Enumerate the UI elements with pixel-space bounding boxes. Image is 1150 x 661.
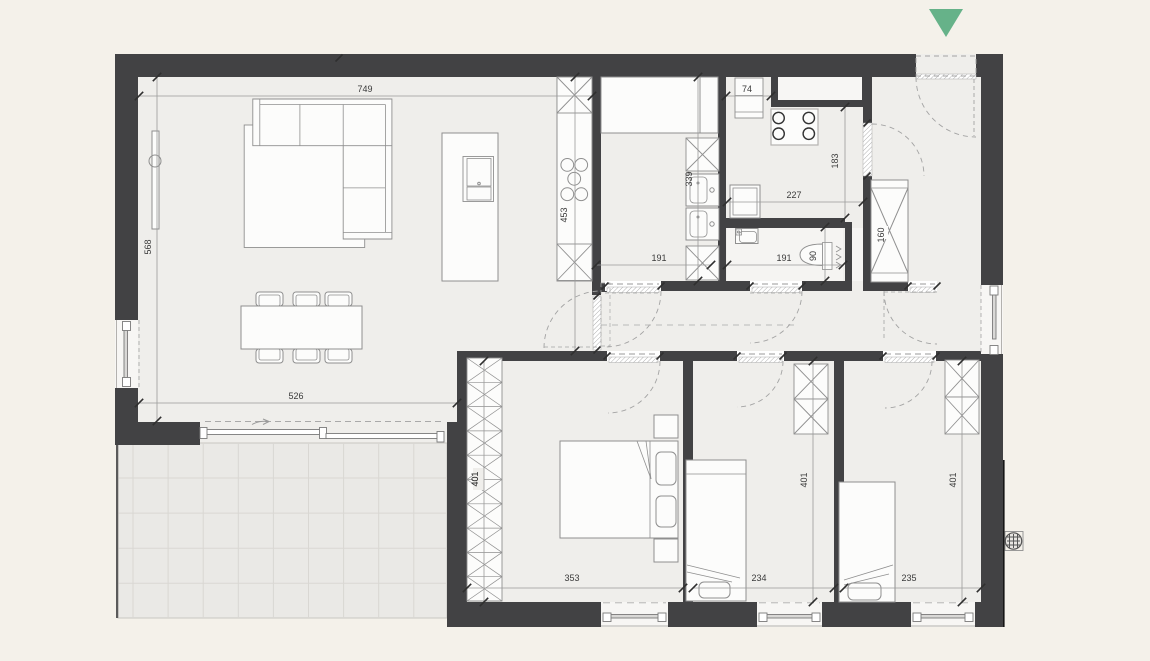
svg-text:191: 191 [776, 253, 791, 263]
svg-text:401: 401 [799, 472, 809, 487]
svg-text:339: 339 [684, 171, 694, 186]
svg-text:353: 353 [564, 573, 579, 583]
svg-text:74: 74 [742, 84, 752, 94]
svg-text:234: 234 [751, 573, 766, 583]
svg-text:526: 526 [288, 391, 303, 401]
svg-text:401: 401 [470, 471, 480, 486]
svg-text:90: 90 [808, 251, 818, 261]
svg-text:227: 227 [786, 190, 801, 200]
svg-text:235: 235 [901, 573, 916, 583]
svg-text:453: 453 [559, 207, 569, 222]
svg-text:191: 191 [651, 253, 666, 263]
svg-text:749: 749 [357, 84, 372, 94]
svg-text:401: 401 [948, 472, 958, 487]
svg-text:183: 183 [830, 153, 840, 168]
svg-text:160: 160 [876, 227, 886, 242]
svg-text:568: 568 [143, 239, 153, 254]
